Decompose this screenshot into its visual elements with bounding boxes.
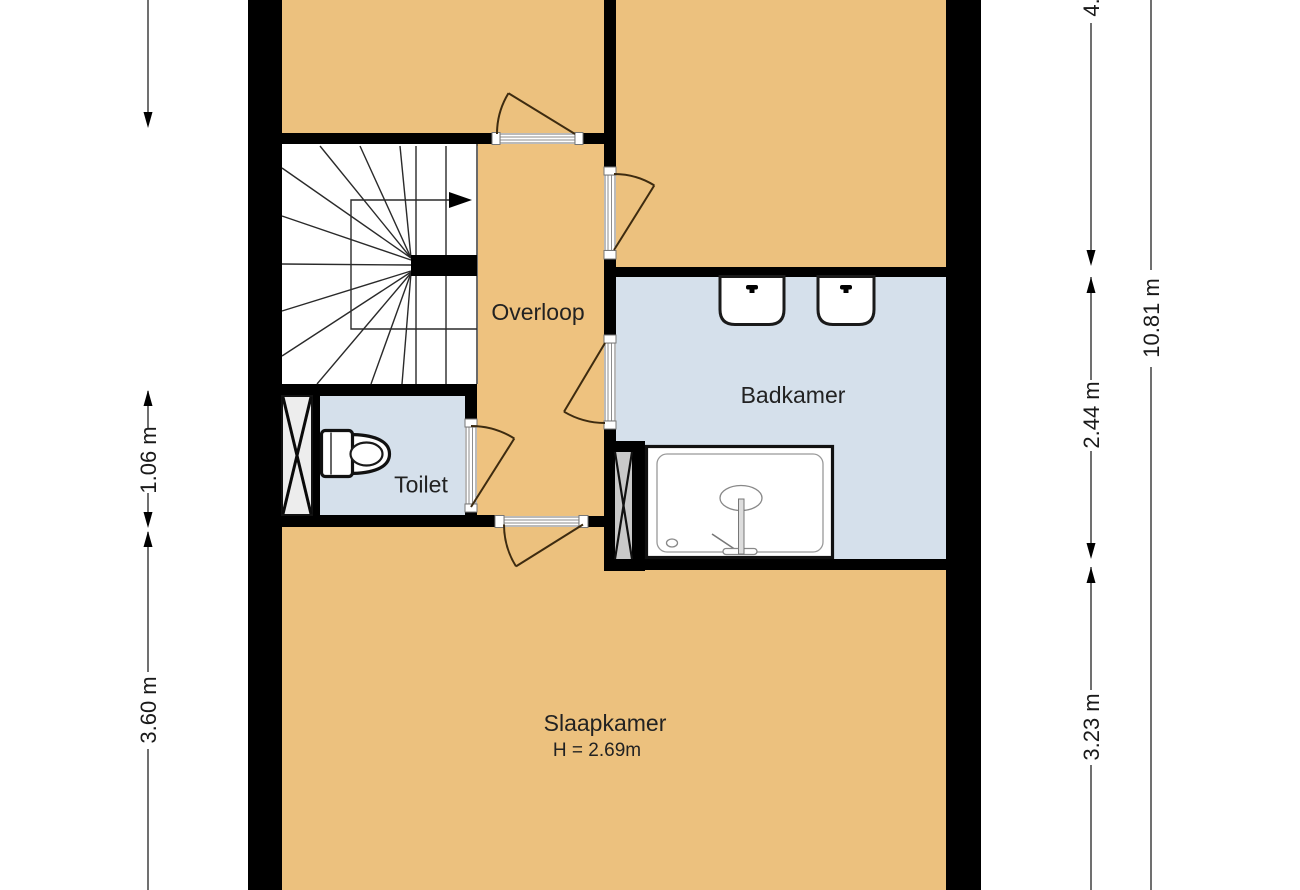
svg-text:1.06 m: 1.06 m [136, 426, 161, 493]
svg-text:H = 2.69m: H = 2.69m [553, 740, 641, 761]
svg-text:Badkamer: Badkamer [741, 382, 846, 408]
svg-text:Toilet: Toilet [394, 472, 448, 498]
svg-text:4.36 m: 4.36 m [1079, 0, 1104, 17]
svg-text:3.23 m: 3.23 m [1079, 693, 1104, 760]
svg-text:2.44 m: 2.44 m [1079, 381, 1104, 448]
svg-text:10.81 m: 10.81 m [1139, 278, 1164, 358]
svg-text:Slaapkamer: Slaapkamer [544, 710, 667, 736]
svg-text:Overloop: Overloop [491, 299, 584, 325]
svg-text:3.60 m: 3.60 m [136, 676, 161, 743]
